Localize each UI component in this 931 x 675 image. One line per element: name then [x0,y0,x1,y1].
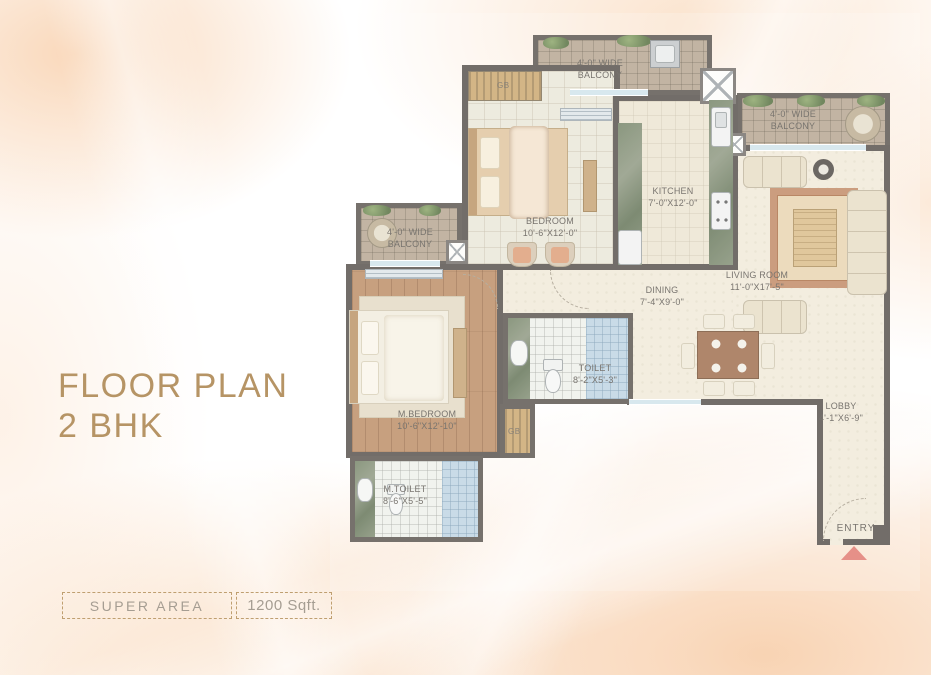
dining-table [697,331,759,379]
planter [617,35,651,47]
ac-unit [365,269,443,279]
window [750,144,866,151]
bed [468,128,568,216]
round-table [845,106,881,142]
wardrobe: GB [468,71,542,101]
stove [711,192,731,230]
wardrobe-label: GB [508,427,521,436]
shower-area [442,461,478,537]
window [370,260,440,267]
wc [545,369,561,393]
pillow [361,361,379,395]
dining-chair [681,343,695,369]
chair [507,242,537,267]
utility-sink-basin [655,45,675,63]
bedroom-label: BEDROOM 10'-6"X12'-0" [523,215,577,239]
ac-unit [560,108,612,121]
balcony-top-label: 4'-0" WIDE BALCONY [577,57,623,81]
planter [543,37,569,49]
dining-chair [733,381,755,396]
dining-chair [761,343,775,369]
shaft-duct [446,240,468,264]
shower-area [586,318,628,399]
page-title: FLOOR PLAN 2 BHK [58,366,288,446]
planter [419,205,441,216]
super-area-box: SUPER AREA [62,592,232,619]
toilet-label: TOILET 8'-2"X5'-3" [573,362,617,386]
bed-blanket [384,315,444,401]
super-area-value: 1200 Sqft. [247,597,320,614]
sofa [743,156,807,188]
pillow [480,137,500,169]
dresser [453,328,467,398]
wardrobe: GB [500,404,535,458]
title-line1: FLOOR PLAN [58,366,288,406]
window [629,399,701,405]
side-table [583,160,597,212]
planter [797,95,825,107]
fridge [618,230,642,265]
floor-plan: GB GB [345,28,905,576]
wardrobe-label: GB [497,81,510,90]
pillow [361,321,379,355]
dining-chair [703,314,725,329]
wall-corner [873,525,890,545]
super-area-value-box: 1200 Sqft. [236,592,332,619]
washbasin [510,340,528,366]
chair [545,242,575,267]
planter [363,205,391,216]
master-toilet-label: M.TOILET 8'-6"X5'-5" [383,483,427,507]
sofa [847,190,887,295]
title-line2: 2 BHK [58,406,288,446]
dining-chair [703,381,725,396]
bed-throw [509,126,549,219]
lobby-label: LOBBY 4'-1"X6'-9" [819,400,863,424]
bed-headboard [469,129,477,215]
planter [743,95,773,107]
master-bedroom-label: M.BEDROOM 10'-6"X12'-10" [397,408,457,432]
utility-sink [650,40,680,68]
dining-chair [733,314,755,329]
bed-headboard [350,311,358,403]
window [570,89,648,96]
washbasin [357,478,373,502]
living-room-label: LIVING ROOM 11'-0"X17'-5" [726,269,788,293]
sink-basin [715,112,727,128]
dining-label: DINING 7'-4"X9'-0" [640,284,684,308]
kitchen-label: KITCHEN 7'-0"X12'-0" [648,185,697,209]
entry-arrow-icon [841,546,867,560]
coffee-table [793,209,837,267]
balcony-right-label: 4'-0" WIDE BALCONY [770,108,816,132]
pillow [480,176,500,208]
clock-icon [813,159,834,180]
balcony-left-label: 4'-0" WIDE BALCONY [387,226,433,250]
kitchen-sink [711,107,731,147]
entry-label: ENTRY [837,522,876,536]
bed [349,310,449,404]
shaft-duct [700,68,736,104]
super-area-label: SUPER AREA [90,598,204,614]
